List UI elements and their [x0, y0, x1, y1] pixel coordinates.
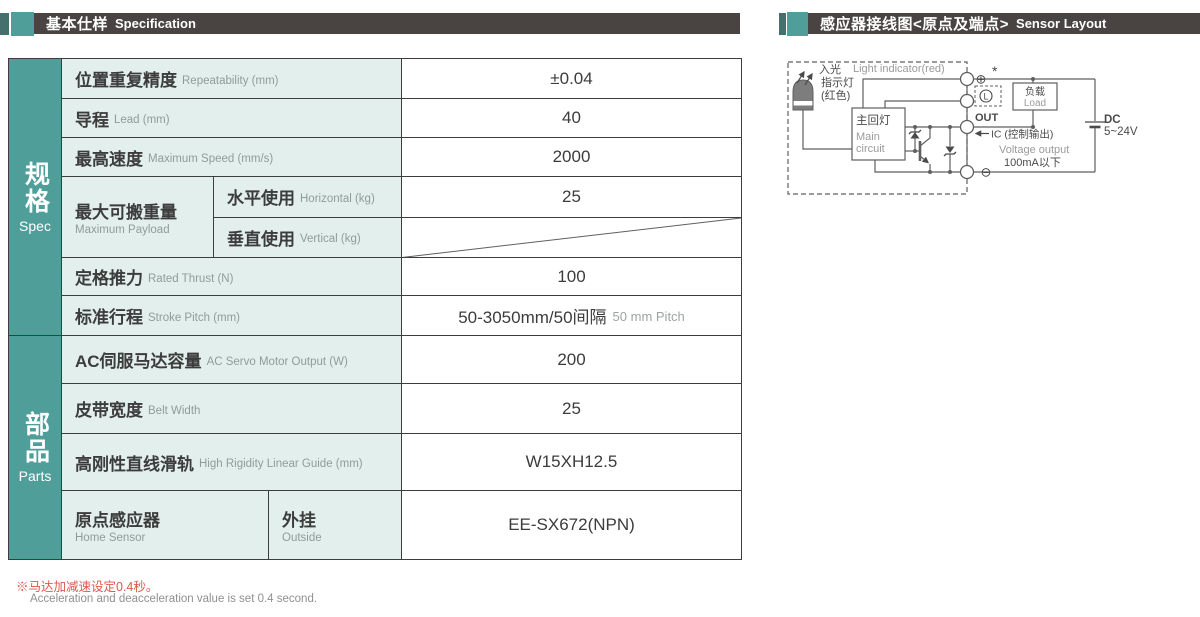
- row-value: 25: [402, 384, 741, 433]
- label-zh: 皮带宽度: [75, 396, 143, 421]
- value-text: 100: [557, 267, 585, 287]
- battery-icon: [1085, 122, 1105, 127]
- row-home-sensor: 原点感应器 Home Sensor 外挂 Outside EE-SX672(NP…: [62, 491, 741, 559]
- label-zh: 水平使用: [227, 184, 295, 209]
- label-en: Lead (mm): [114, 110, 170, 126]
- payload-subrows: 水平使用 Horizontal (kg) 25 垂直使用 Vertical (k…: [214, 177, 741, 257]
- row-stroke-pitch: 标准行程 Stroke Pitch (mm) 50-3050mm/50间隔 50…: [62, 296, 741, 336]
- terminal-out-circle: [961, 121, 974, 134]
- asterisk-mark: *: [992, 63, 998, 79]
- row-value: 50-3050mm/50间隔 50 mm Pitch: [402, 296, 741, 335]
- row-value: 25: [402, 177, 741, 217]
- row-servo-output: AC伺服马达容量 AC Servo Motor Output (W) 200: [62, 336, 741, 384]
- value-text: 25: [562, 399, 581, 419]
- dc-range: 5~24V: [1104, 126, 1138, 138]
- indicator-label-zh: 指示灯: [821, 75, 854, 89]
- sidebar-parts-zh: 部品: [22, 411, 49, 465]
- header-accent-teal: [787, 12, 808, 36]
- label-zh: 最高速度: [75, 145, 143, 170]
- value-text: 25: [562, 187, 581, 207]
- light-indicator-label-en: Light indicator(red): [853, 63, 945, 75]
- zener-diode-2: [944, 125, 956, 174]
- row-sublabel-outside: 外挂 Outside: [269, 491, 402, 559]
- label-en: Belt Width: [148, 401, 200, 417]
- label-en: High Rigidity Linear Guide (mm): [199, 454, 363, 470]
- header-title-en: Specification: [115, 16, 196, 31]
- label-en: Rated Thrust (N): [148, 269, 233, 285]
- label-zh: 导程: [75, 106, 109, 131]
- row-value: W15XH12.5: [402, 434, 741, 490]
- label-zh: 原点感应器: [75, 506, 160, 531]
- table-rows: 位置重复精度 Repeatability (mm) ±0.04 导程 Lead …: [62, 59, 741, 559]
- footnote-en: Acceleration and deacceleration value is…: [30, 593, 317, 605]
- value-text: 40: [562, 108, 581, 128]
- terminal-lamp-circle: [961, 95, 974, 108]
- value-text: W15XH12.5: [526, 452, 618, 472]
- row-label: 导程 Lead (mm): [62, 99, 402, 137]
- row-lead: 导程 Lead (mm) 40: [62, 99, 741, 138]
- main-circuit-zh: 主回灯: [856, 114, 891, 127]
- header-title-en: Sensor Layout: [1016, 16, 1106, 31]
- table-sidebar: 规格 Spec 部品 Parts: [9, 59, 62, 559]
- sidebar-spec-zh: 规格: [22, 161, 49, 215]
- sidebar-section-parts: 部品 Parts: [9, 336, 61, 559]
- na-diagonal-line: [402, 218, 741, 258]
- value-text: EE-SX672(NPN): [508, 515, 635, 535]
- row-label: 高刚性直线滑轨 High Rigidity Linear Guide (mm): [62, 434, 402, 490]
- row-value: 2000: [402, 138, 741, 176]
- ic-label: IC (控制输出): [991, 128, 1053, 141]
- header-title-zh: 基本仕样: [46, 13, 108, 34]
- row-payload-horizontal: 水平使用 Horizontal (kg) 25: [214, 177, 741, 218]
- label-en: Maximum Speed (mm/s): [148, 149, 273, 165]
- row-label: 最高速度 Maximum Speed (mm/s): [62, 138, 402, 176]
- sidebar-section-spec: 规格 Spec: [9, 59, 61, 336]
- lamp-letter: L: [983, 92, 988, 102]
- row-linear-guide: 高刚性直线滑轨 High Rigidity Linear Guide (mm) …: [62, 434, 741, 491]
- row-max-speed: 最高速度 Maximum Speed (mm/s) 2000: [62, 138, 741, 177]
- sidebar-parts-en: Parts: [19, 468, 52, 484]
- main-circuit-en-1: Main: [856, 131, 880, 143]
- row-label: 位置重复精度 Repeatability (mm): [62, 59, 402, 98]
- section-header-specification: 基本仕样 Specification: [34, 13, 740, 34]
- load-zh: 负载: [1025, 85, 1045, 98]
- row-value: EE-SX672(NPN): [402, 491, 741, 559]
- label-en: Outside: [282, 531, 322, 544]
- label-en: Vertical (kg): [300, 229, 361, 245]
- plus-symbol: ⊕: [976, 72, 987, 87]
- row-label: 标准行程 Stroke Pitch (mm): [62, 296, 402, 335]
- row-rated-thrust: 定格推力 Rated Thrust (N) 100: [62, 258, 741, 296]
- row-label: 皮带宽度 Belt Width: [62, 384, 402, 433]
- junction-dot: [1031, 77, 1035, 81]
- label-zh: 位置重复精度: [75, 66, 177, 91]
- npn-transistor: [920, 125, 932, 174]
- value-text: 2000: [553, 147, 591, 167]
- label-zh: 外挂: [282, 506, 316, 531]
- header-title-zh: 感应器接线图<原点及端点>: [820, 13, 1009, 34]
- row-repeatability: 位置重复精度 Repeatability (mm) ±0.04: [62, 59, 741, 99]
- minus-symbol: ⊖: [981, 165, 992, 180]
- terminal-plus-circle: [961, 73, 974, 86]
- label-en: AC Servo Motor Output (W): [207, 352, 348, 368]
- sidebar-spec-en: Spec: [19, 218, 51, 234]
- row-label: 垂直使用 Vertical (kg): [214, 218, 402, 258]
- value-text: ±0.04: [550, 69, 592, 89]
- red-label-zh: (红色): [821, 88, 850, 102]
- row-label: 原点感应器 Home Sensor: [62, 491, 269, 559]
- spec-table: 规格 Spec 部品 Parts 位置重复精度 Repeatability (m…: [8, 58, 742, 560]
- label-en: Repeatability (mm): [182, 71, 279, 87]
- value-text: 200: [557, 350, 585, 370]
- section-header-sensor-layout: 感应器接线图<原点及端点> Sensor Layout: [808, 13, 1200, 34]
- row-value-na: [402, 218, 741, 258]
- row-value: ±0.04: [402, 59, 741, 98]
- label-zh: 标准行程: [75, 303, 143, 328]
- value-text: 50-3050mm/50间隔: [458, 303, 606, 328]
- light-in-label-zh: 入光: [819, 62, 841, 76]
- label-en: Stroke Pitch (mm): [148, 308, 240, 324]
- main-circuit-en-2: circuit: [856, 143, 885, 155]
- row-label: 定格推力 Rated Thrust (N): [62, 258, 402, 295]
- row-payload-vertical: 垂直使用 Vertical (kg): [214, 218, 741, 258]
- row-value: 40: [402, 99, 741, 137]
- row-payload-group: 最大可搬重量 Maximum Payload 水平使用 Horizontal (…: [62, 177, 741, 258]
- row-belt-width: 皮带宽度 Belt Width 25: [62, 384, 741, 434]
- current-limit-label: 100mA以下: [1004, 157, 1061, 169]
- row-label: 水平使用 Horizontal (kg): [214, 177, 402, 217]
- row-label-payload: 最大可搬重量 Maximum Payload: [62, 177, 214, 257]
- label-zh: AC伺服马达容量: [75, 347, 202, 372]
- dc-label: DC: [1104, 114, 1121, 126]
- out-label: OUT: [975, 112, 999, 124]
- label-en: Horizontal (kg): [300, 189, 375, 205]
- header-accent-dark: [0, 13, 9, 35]
- load-en: Load: [1024, 98, 1046, 109]
- label-en: Maximum Payload: [75, 223, 170, 236]
- header-accent-teal: [11, 12, 34, 36]
- row-label: AC伺服马达容量 AC Servo Motor Output (W): [62, 336, 402, 383]
- label-zh: 最大可搬重量: [75, 198, 177, 223]
- label-zh: 高刚性直线滑轨: [75, 450, 194, 475]
- label-zh: 定格推力: [75, 264, 143, 289]
- label-en: Home Sensor: [75, 531, 145, 544]
- row-value: 200: [402, 336, 741, 383]
- sensor-wiring-diagram: 入光 指示灯 (红色) Light indicator(red) 主回灯 Mai…: [775, 50, 1200, 210]
- terminal-minus-circle: [961, 166, 974, 179]
- label-zh: 垂直使用: [227, 225, 295, 250]
- header-accent-dark: [779, 13, 786, 35]
- row-value: 100: [402, 258, 741, 295]
- value-text-en: 50 mm Pitch: [613, 307, 685, 324]
- voltage-output-label: Voltage output: [999, 144, 1069, 156]
